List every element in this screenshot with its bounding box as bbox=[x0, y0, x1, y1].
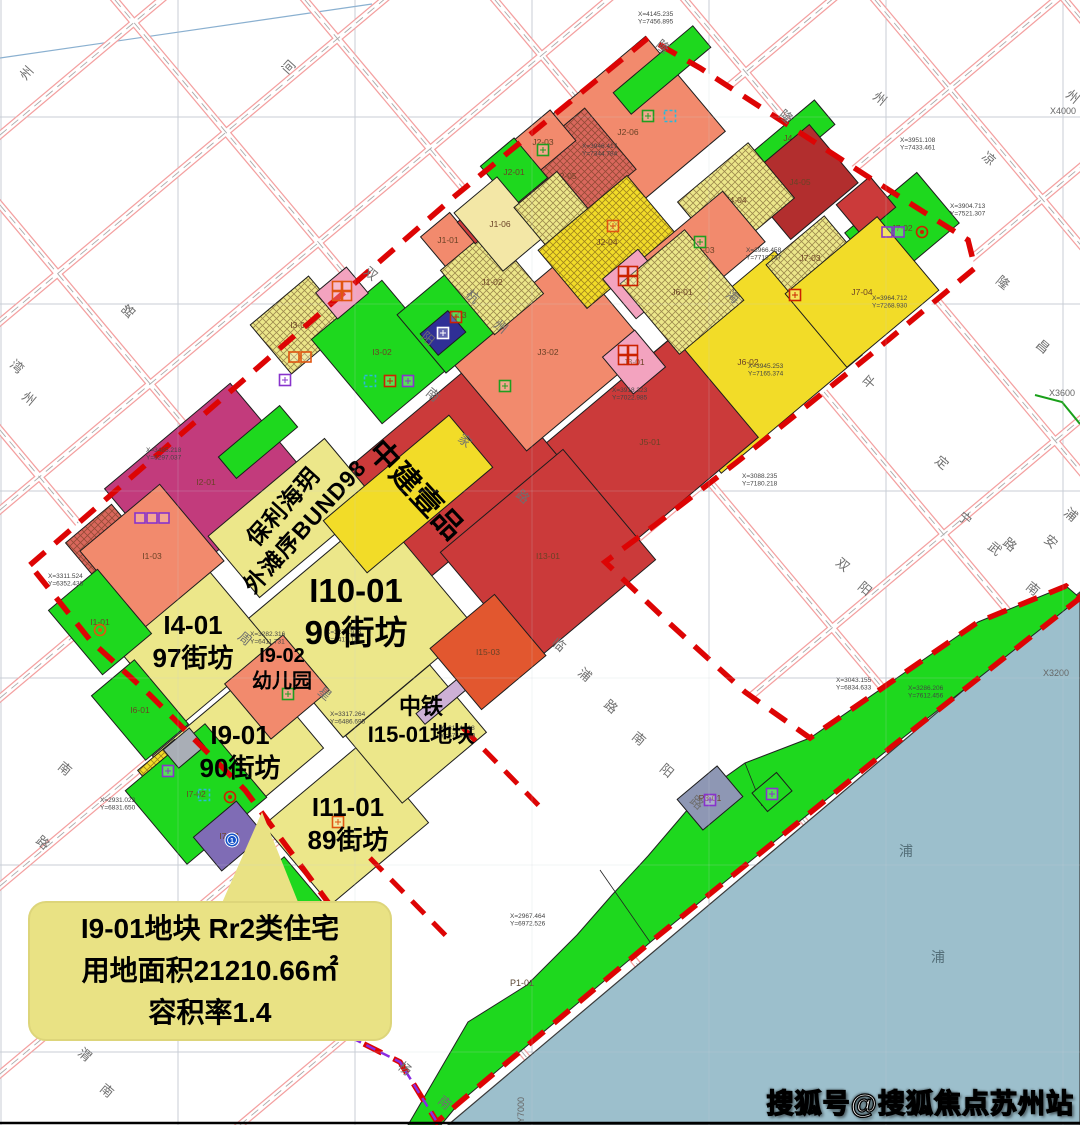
marker-box-icon bbox=[438, 328, 449, 339]
callout-line-3: 容积率1.4 bbox=[149, 992, 272, 1034]
coordinate-label: X=3918.323 bbox=[612, 387, 648, 394]
parcel-id-label: J1-01 bbox=[437, 235, 459, 245]
marker-box-icon bbox=[280, 375, 291, 386]
marker-boxes3-icon bbox=[135, 513, 169, 523]
annotation-callout: I9-01地块 Rr2类住宅 用地面积21210.66㎡ 容积率1.4 bbox=[28, 901, 392, 1041]
parcel-id-label: I13-01 bbox=[536, 551, 560, 561]
coordinate-label: Y=6834.633 bbox=[836, 685, 872, 692]
coordinate-label: X=3966.458 bbox=[746, 247, 782, 254]
marker-box-icon bbox=[403, 376, 414, 387]
coordinate-label: Y=7180.218 bbox=[742, 481, 778, 488]
marker-one-icon: 1 bbox=[225, 833, 239, 847]
parcel-id-label: I6-01 bbox=[130, 705, 150, 715]
parcel-id-label: J5-01 bbox=[639, 437, 661, 447]
callout-line-1: I9-01地块 Rr2类住宅 bbox=[81, 908, 339, 950]
grid-ref-label: Y7000 bbox=[516, 1097, 526, 1123]
coordinate-label: Y=6297.037 bbox=[146, 455, 182, 462]
coordinate-label: Y=7433.461 bbox=[900, 145, 936, 152]
coordinate-label: X=3964.712 bbox=[872, 295, 908, 302]
major-parcel-label: 90街坊 bbox=[305, 614, 408, 651]
major-parcel-label: I10-01 bbox=[309, 572, 403, 609]
coordinate-label: Y=6352.438 bbox=[48, 581, 84, 588]
parcel-id-label: J1-02 bbox=[481, 277, 503, 287]
marker-box-icon bbox=[163, 766, 174, 777]
major-parcel-label: 90街坊 bbox=[200, 753, 281, 783]
major-parcel-label: I15-01地块 bbox=[368, 722, 475, 747]
parcel-id-label: J2-01 bbox=[503, 167, 525, 177]
grid-ref-label: X3600 bbox=[1049, 388, 1075, 398]
parcel-id-label: J6-01 bbox=[671, 287, 693, 297]
marker-box-icon bbox=[790, 290, 801, 301]
parcel-id-label: I3-02 bbox=[372, 347, 392, 357]
parcel-id-label: P1-01 bbox=[510, 978, 534, 988]
parcel-id-label: J2-06 bbox=[617, 127, 639, 137]
coordinate-label: Y=7718.767 bbox=[746, 255, 782, 262]
coordinate-label: X=3311.524 bbox=[48, 573, 83, 580]
zoning-map-page: 浦浦P1-01J6-02J5-01I12-01I13-01J3-02J2-06I… bbox=[0, 0, 1080, 1125]
major-parcel-label: I4-01 bbox=[163, 610, 222, 640]
coordinate-label: Y=7344.784 bbox=[582, 151, 618, 158]
coordinate-label: Y=7521.307 bbox=[950, 211, 986, 218]
river-name-char: 浦 bbox=[931, 949, 945, 965]
coordinate-label: Y=6831.650 bbox=[100, 805, 136, 812]
major-parcel-label: 89街坊 bbox=[308, 825, 389, 855]
major-parcel-label: 97街坊 bbox=[153, 643, 234, 673]
coordinate-label: Y=6972.526 bbox=[510, 921, 546, 928]
coordinate-label: Y=7022.985 bbox=[612, 395, 648, 402]
parcel-id-label: J2-04 bbox=[596, 237, 618, 247]
marker-box-icon bbox=[385, 376, 396, 387]
coordinate-label: X=3945.253 bbox=[748, 363, 784, 370]
major-parcel-label: 幼儿园 bbox=[252, 668, 312, 692]
parcel-id-label: I2-01 bbox=[196, 477, 216, 487]
parcel-id-label: J1-06 bbox=[489, 219, 511, 229]
major-parcel-label: I9-02 bbox=[259, 645, 305, 667]
coordinate-label: Y=7612.456 bbox=[908, 693, 944, 700]
river-name-char: 浦 bbox=[899, 843, 913, 859]
coordinate-label: X=2931.023 bbox=[100, 797, 136, 804]
parcel-id-label: J7-04 bbox=[851, 287, 873, 297]
parcel-id-label: J4-05 bbox=[789, 177, 811, 187]
parcel-id-label: J3-02 bbox=[537, 347, 559, 357]
marker-boxes4-icon bbox=[619, 346, 638, 365]
marker-box-icon bbox=[500, 381, 511, 392]
grid-ref-label: X3200 bbox=[1043, 668, 1069, 678]
coordinate-label: X=4145.235 bbox=[638, 11, 674, 18]
marker-box-icon bbox=[695, 237, 706, 248]
coordinate-label: X=3088.235 bbox=[742, 473, 778, 480]
parcel-id-label: I7-02 bbox=[186, 789, 206, 799]
coordinate-label: X=3946.417 bbox=[582, 143, 618, 150]
marker-box-icon bbox=[767, 789, 778, 800]
parcel-id-label: I1-01 bbox=[90, 617, 110, 627]
parcel-id-label: I1-03 bbox=[142, 551, 162, 561]
callout-line-2: 用地面积21210.66㎡ bbox=[82, 950, 339, 992]
coordinate-label: X=2967.464 bbox=[510, 913, 546, 920]
major-parcel-label: I9-01 bbox=[210, 720, 269, 750]
marker-box-icon bbox=[643, 111, 654, 122]
coordinate-label: Y=7165.374 bbox=[748, 371, 784, 378]
coordinate-label: X=3286.206 bbox=[908, 685, 944, 692]
coordinate-label: X=3904.713 bbox=[950, 203, 986, 210]
watermark: 搜狐号@搜狐焦点苏州站 bbox=[767, 1082, 1074, 1121]
coordinate-label: X=3282.316 bbox=[250, 631, 286, 638]
marker-box-icon bbox=[538, 145, 549, 156]
marker-box-icon bbox=[608, 221, 619, 232]
marker-box-icon bbox=[451, 312, 462, 323]
coordinate-label: Y=7456.895 bbox=[638, 19, 674, 26]
parcel-id-label: I15-03 bbox=[476, 647, 500, 657]
coordinate-label: X=3317.264 bbox=[330, 711, 366, 718]
map-text: 1 bbox=[230, 838, 234, 845]
parcel-id-label: J7-03 bbox=[799, 253, 821, 263]
coordinate-label: Y=6486.695 bbox=[330, 719, 366, 726]
coordinate-label: X=3951.108 bbox=[900, 137, 936, 144]
marker-boxes4-icon bbox=[619, 267, 638, 286]
marker-boxes4-icon bbox=[333, 282, 352, 301]
major-parcel-label: I11-01 bbox=[312, 792, 384, 822]
coordinate-label: X=3485.218 bbox=[146, 447, 182, 454]
major-parcel-label: 中铁 bbox=[399, 694, 443, 719]
